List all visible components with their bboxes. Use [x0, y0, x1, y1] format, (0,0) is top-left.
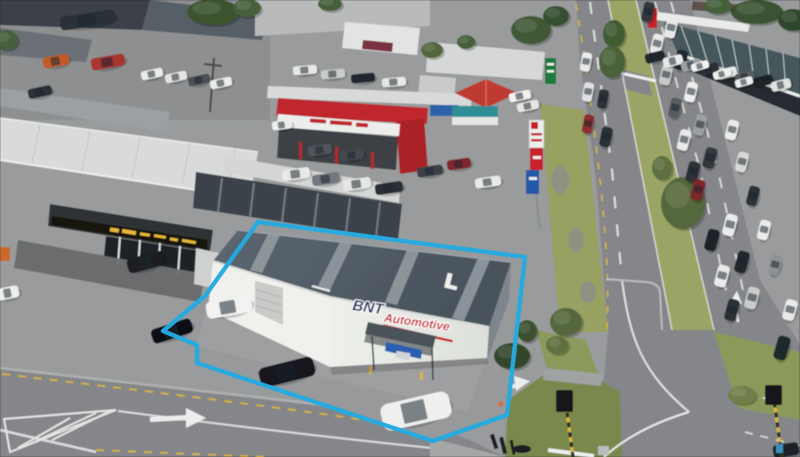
gravel-patch	[568, 228, 584, 252]
blue-panel-text	[529, 177, 537, 180]
aerial-photo-svg: BNT Automotive	[0, 0, 800, 457]
aerial-photo: BNT Automotive	[0, 0, 800, 457]
teal-shop-band	[452, 106, 498, 118]
blue-pylon-panel	[526, 170, 539, 194]
yellow-bollard	[420, 372, 423, 380]
traffic-cone	[498, 401, 503, 406]
pylon-text	[531, 133, 542, 136]
red-wall	[396, 118, 428, 174]
orange-sign	[0, 247, 10, 261]
pylon-text	[531, 139, 542, 142]
green-sign-text	[547, 70, 554, 73]
green-sign-text	[547, 63, 554, 66]
shadow-blob	[513, 445, 531, 453]
signal-cabinet	[598, 446, 609, 455]
gravel-patch	[551, 166, 569, 194]
signal-head	[556, 390, 573, 412]
pedestrian-box	[776, 444, 783, 453]
pylon-logo	[531, 122, 538, 129]
red-panel-text	[533, 156, 541, 159]
gravel-patch	[580, 281, 596, 303]
signal-head	[765, 385, 782, 405]
shop-wall	[452, 117, 498, 125]
